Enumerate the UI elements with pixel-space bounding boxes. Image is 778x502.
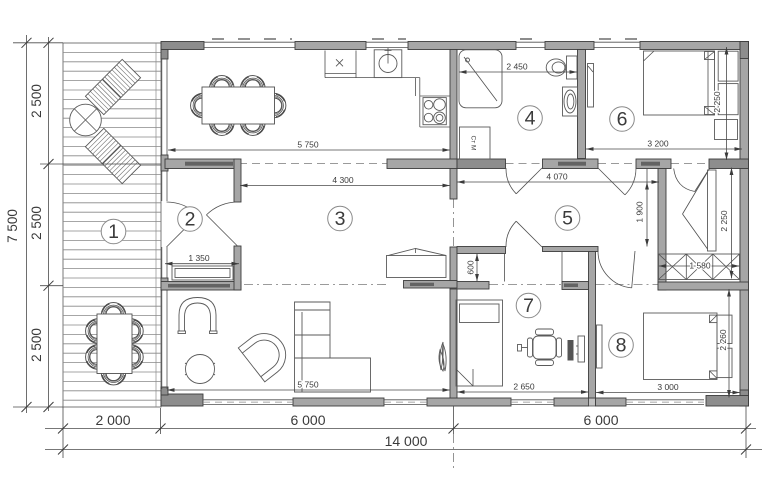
svg-text:4 070: 4 070: [546, 172, 568, 182]
svg-text:2 000: 2 000: [95, 412, 130, 428]
svg-text:5 750: 5 750: [297, 140, 319, 150]
svg-text:2 450: 2 450: [506, 62, 528, 72]
svg-text:4 300: 4 300: [332, 175, 354, 185]
svg-text:2 500: 2 500: [29, 206, 44, 240]
svg-text:2 500: 2 500: [29, 84, 44, 118]
svg-text:1 900: 1 900: [635, 201, 645, 223]
svg-text:2 250: 2 250: [719, 210, 729, 232]
svg-text:14 000: 14 000: [385, 433, 428, 449]
svg-text:2 500: 2 500: [29, 328, 44, 362]
svg-text:3: 3: [335, 208, 346, 230]
svg-text:3 000: 3 000: [657, 382, 679, 392]
svg-text:1 580: 1 580: [689, 261, 711, 271]
svg-text:6 000: 6 000: [290, 412, 325, 428]
svg-text:7: 7: [523, 295, 534, 317]
svg-text:6 000: 6 000: [583, 412, 618, 428]
svg-text:7 500: 7 500: [5, 209, 20, 243]
svg-text:5 750: 5 750: [297, 380, 319, 390]
svg-text:Ст М: Ст М: [469, 136, 476, 151]
svg-text:6: 6: [617, 109, 628, 131]
svg-text:600: 600: [466, 260, 476, 274]
svg-text:2 250: 2 250: [712, 91, 722, 113]
svg-text:4: 4: [525, 108, 536, 130]
svg-text:2 650: 2 650: [513, 382, 535, 392]
svg-text:8: 8: [616, 335, 627, 357]
svg-text:2: 2: [185, 209, 196, 231]
svg-text:1 350: 1 350: [188, 253, 210, 263]
svg-text:3 200: 3 200: [647, 139, 669, 149]
svg-text:2 260: 2 260: [718, 329, 728, 351]
svg-text:5: 5: [562, 208, 573, 230]
svg-text:1: 1: [108, 221, 119, 243]
